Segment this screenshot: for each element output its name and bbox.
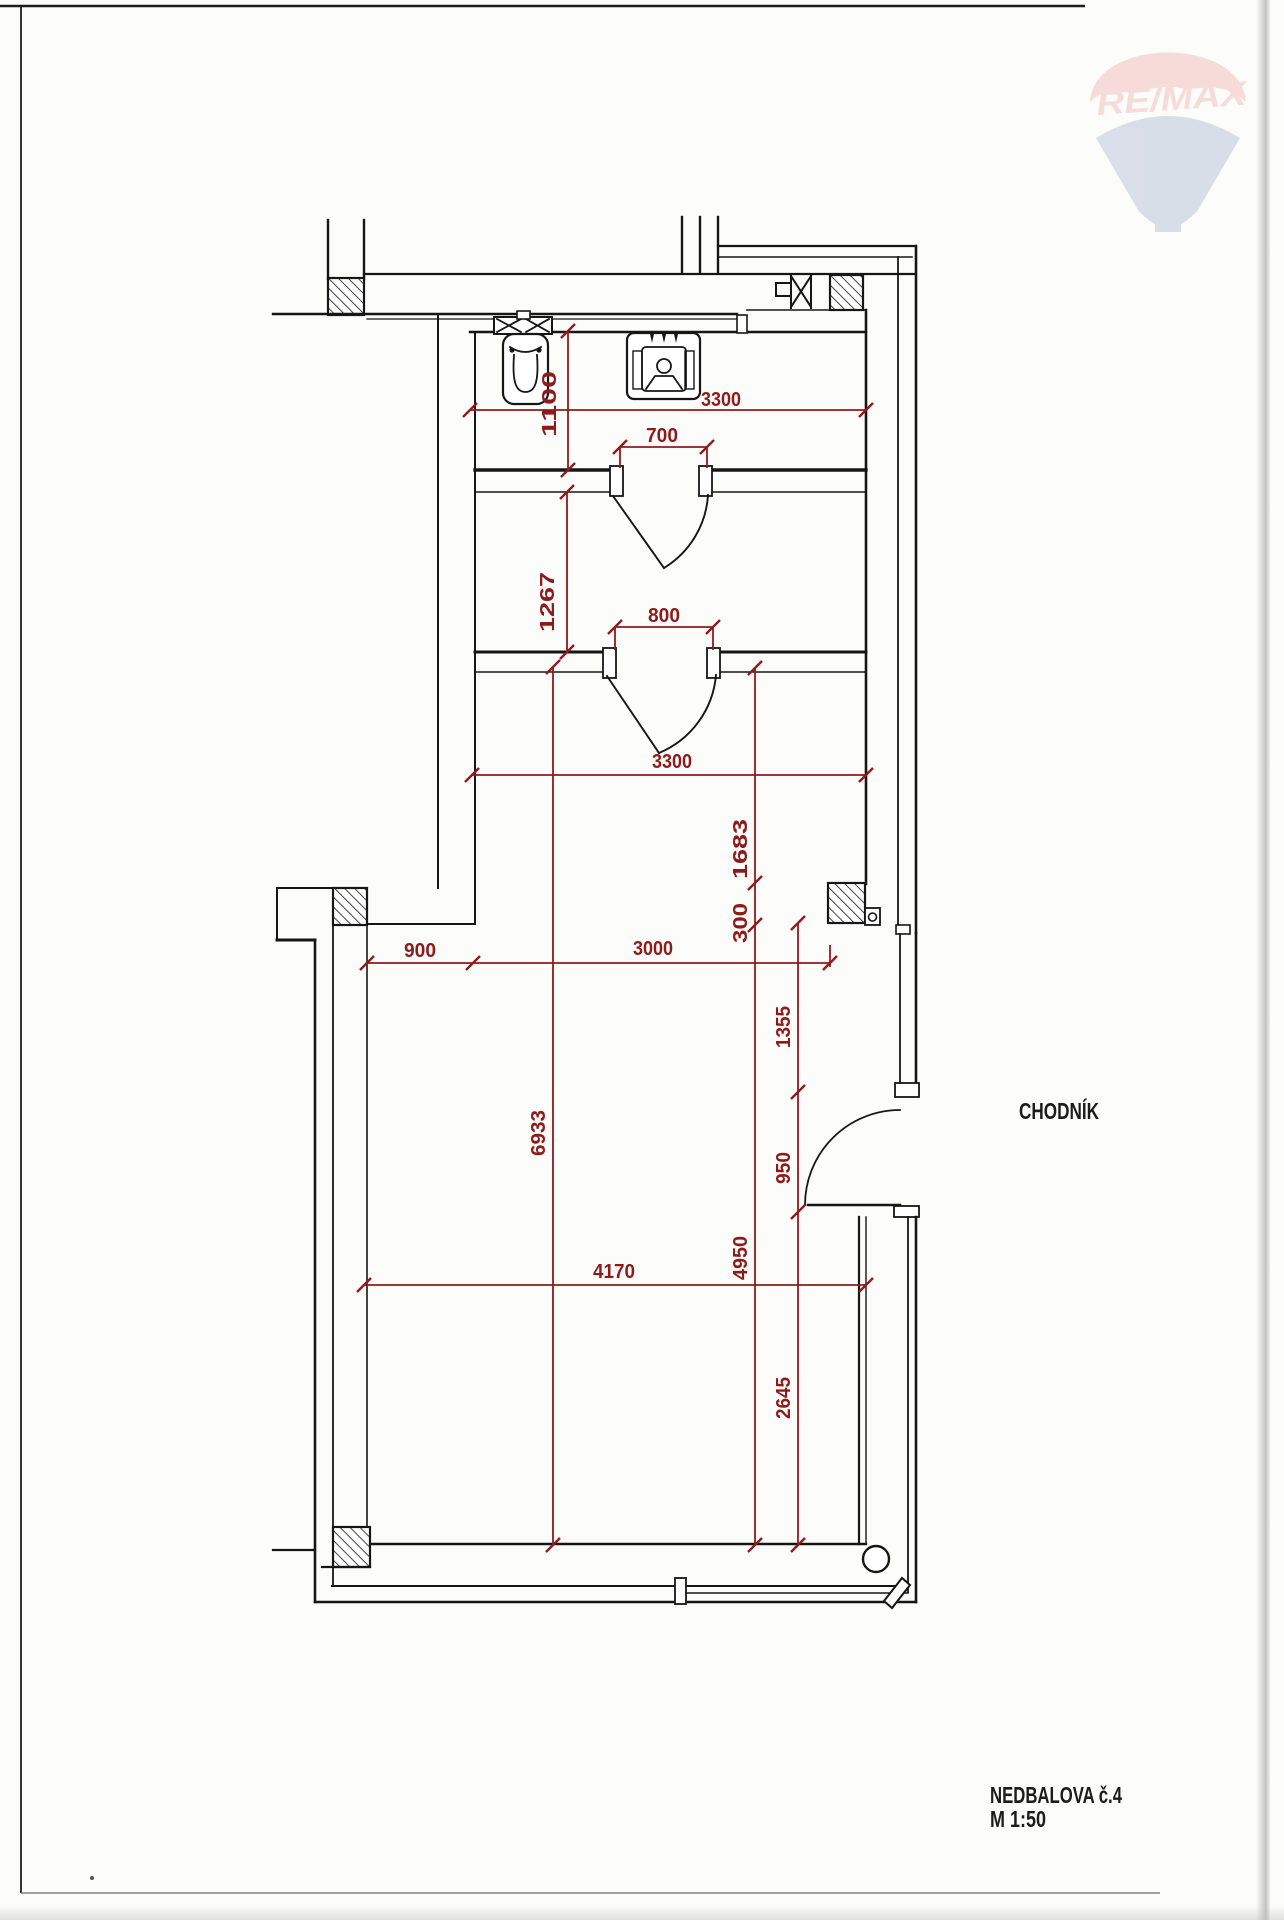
dim-4170: 4170 <box>593 1261 635 1283</box>
sink-fixture <box>627 333 700 399</box>
window-jamb <box>675 1578 686 1604</box>
remax-balloon-watermark: RE/MAX <box>1090 53 1250 233</box>
dim-1355: 1355 <box>773 1006 795 1048</box>
dimension-ticks <box>357 324 873 1552</box>
dim-1100: 1100 <box>539 371 561 437</box>
dim-2645: 2645 <box>773 1377 795 1419</box>
wall-pier-hatched-top-right <box>830 275 863 310</box>
dim-3300-top: 3300 <box>701 389 741 411</box>
wall-step <box>737 315 747 333</box>
balloon-bottom-blue <box>1096 116 1240 228</box>
hinge-block <box>865 908 880 925</box>
dim-4950: 4950 <box>730 1236 752 1280</box>
scan-speck <box>90 1876 94 1880</box>
wall-pier-hatched <box>328 278 364 315</box>
paper-edge-shadow-right <box>1256 0 1270 1920</box>
door1-swing <box>613 495 708 568</box>
wall-pier-hatched-right <box>828 883 865 923</box>
scanned-floor-plan-page: RE/MAX <box>0 0 1284 1920</box>
tick <box>357 324 873 1552</box>
walls <box>273 217 919 1608</box>
dimension-lines <box>364 331 866 1545</box>
entry-door <box>805 1110 900 1205</box>
wall-pier-hatched-bottom-left <box>333 1527 370 1567</box>
dim-3300-mid: 3300 <box>652 751 692 773</box>
door2-jamb-left <box>603 648 616 678</box>
page-border <box>0 6 1160 1893</box>
dim-950: 950 <box>773 1152 795 1184</box>
dim-300: 300 <box>730 903 752 943</box>
title-street-label: NEDBALOVA č.4 <box>990 1782 1122 1808</box>
dim-800: 800 <box>648 605 680 627</box>
pipe-valve-icon <box>776 275 811 308</box>
door-jamb-top <box>895 1083 919 1097</box>
balloon-basket <box>1155 222 1181 232</box>
dim-1683: 1683 <box>730 819 752 879</box>
dim-3000: 3000 <box>633 938 673 960</box>
door1-jamb-right <box>699 466 712 496</box>
dim-1267: 1267 <box>537 572 559 632</box>
column-circle <box>863 1546 889 1572</box>
title-scale-label: M 1:50 <box>990 1806 1046 1832</box>
door2-swing <box>607 675 716 753</box>
door1-jamb-left <box>610 466 623 496</box>
door-jamb-bottom <box>894 1206 919 1217</box>
dim-900: 900 <box>404 940 436 962</box>
dim-6933: 6933 <box>528 1110 550 1156</box>
floor-plan-svg: RE/MAX <box>0 0 1284 1920</box>
wall-pier-hatched-left <box>333 888 367 925</box>
dim-700: 700 <box>646 425 678 447</box>
paper-edge-shadow-bottom <box>0 1906 1284 1920</box>
corridor-label: CHODNÍK <box>1019 1097 1099 1124</box>
dimension-labels: 1100 3300 700 1267 800 3300 1683 300 900… <box>404 371 795 1419</box>
door2-jamb-right <box>707 648 720 678</box>
